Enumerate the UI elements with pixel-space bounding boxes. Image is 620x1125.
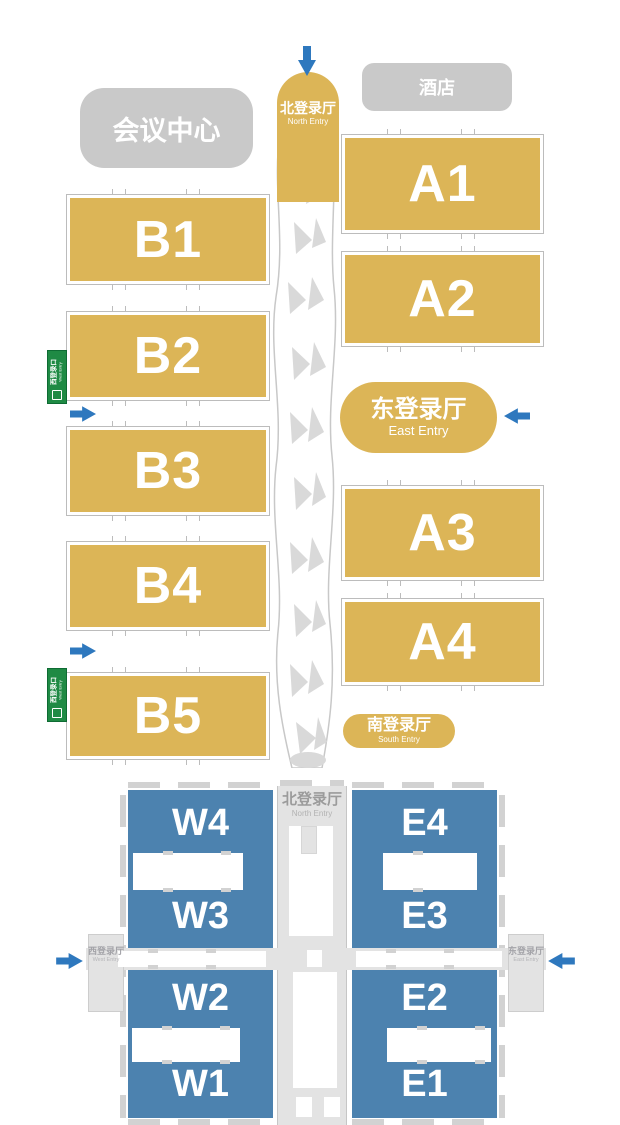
gate-sign-b2: 西登录口 West Entry (47, 350, 67, 404)
hotel-label: 酒店 (419, 74, 455, 100)
hall-a4-label: A4 (408, 612, 476, 672)
hall-b2-label: B2 (134, 326, 202, 386)
hall-e4-label: E4 (352, 804, 497, 842)
hall-b4: B4 (70, 545, 266, 627)
east-entry-lower-zh: 东登录厅 (502, 947, 550, 957)
hall-gap (387, 1028, 491, 1062)
hall-b5-label: B5 (134, 686, 202, 746)
hall-b2: B2 (70, 315, 266, 397)
hall-gap (132, 1028, 240, 1062)
edge-trim (128, 1119, 273, 1125)
hall-a1: A1 (345, 138, 540, 230)
lower-north-entry: 北登录厅 North Entry (277, 791, 347, 819)
hotel-building: 酒店 (362, 63, 512, 111)
hall-a4: A4 (345, 602, 540, 682)
edge-trim (128, 782, 273, 788)
north-entry-hall: 北登录厅 North Entry (277, 72, 339, 202)
hall-b3-label: B3 (134, 441, 202, 501)
corridor-void (296, 1097, 312, 1117)
gate-sign-b2-en: West Entry (58, 359, 62, 385)
gate-pictogram-icon (52, 390, 62, 400)
east-entry-label-en: East Entry (389, 423, 449, 439)
gate-sign-b5: 西登录口 West Entry (47, 668, 67, 722)
lower-north-entry-zh: 北登录厅 (277, 791, 347, 809)
gate-sign-b5-en: West Entry (58, 677, 62, 703)
hall-b3: B3 (70, 430, 266, 512)
venue-floor-plan: 北登录厅 North Entry 酒店 会议中心 A1 A2 A3 A4 B1 … (0, 0, 620, 1125)
hall-a1-label: A1 (408, 154, 476, 214)
hall-w4-label: W4 (128, 804, 273, 842)
north-entry-label-zh: 北登录厅 (277, 100, 339, 117)
west-entry-en: West Entry (82, 957, 130, 964)
north-entry-label-en: North Entry (277, 117, 339, 127)
corridor-void (118, 951, 266, 967)
hall-a2-label: A2 (408, 269, 476, 329)
central-corridor-art (264, 132, 348, 768)
hall-gap (383, 853, 477, 890)
hall-b1: B1 (70, 198, 266, 281)
hall-b5: B5 (70, 676, 266, 756)
hall-a3-label: A3 (408, 503, 476, 563)
south-entry-label-en: South Entry (378, 735, 420, 745)
edge-trim (352, 1119, 497, 1125)
corridor-void (293, 972, 337, 1088)
south-entry-hall: 南登录厅 South Entry (343, 714, 455, 748)
hall-e2-label: E2 (352, 979, 497, 1017)
west-gate-arrow-right-icon-1 (70, 406, 96, 422)
hall-w1-label: W1 (128, 1065, 273, 1103)
edge-trim (352, 782, 497, 788)
corridor-notch (301, 826, 317, 854)
corridor-void (324, 1097, 340, 1117)
hall-b1-label: B1 (134, 210, 202, 270)
hall-a2: A2 (345, 255, 540, 343)
corridor-void (307, 950, 322, 967)
hall-e3-label: E3 (352, 897, 497, 935)
west-entry-zh: 西登录厅 (82, 947, 130, 957)
east-entry-hall-upper: 东登录厅 East Entry (340, 382, 497, 453)
hall-e1-label: E1 (352, 1065, 497, 1103)
south-entry-label-zh: 南登录厅 (367, 717, 431, 735)
conference-center-building: 会议中心 (80, 88, 253, 168)
gate-pictogram-icon (52, 708, 62, 718)
west-entry-arrow-right-icon (56, 953, 83, 969)
east-entry-arrow-left-icon (548, 953, 575, 969)
hall-a3: A3 (345, 489, 540, 577)
hall-w2-label: W2 (128, 979, 273, 1017)
east-entry-arrow-left-icon (504, 408, 530, 424)
hall-w3-label: W3 (128, 897, 273, 935)
hall-b4-label: B4 (134, 556, 202, 616)
north-entry-arrow-down-icon (296, 46, 318, 76)
east-entry-labels: 东登录厅 East Entry (502, 947, 550, 963)
corridor-void (356, 951, 502, 967)
conference-center-label: 会议中心 (113, 109, 221, 148)
lower-north-entry-en: North Entry (277, 809, 347, 819)
east-entry-lower-en: East Entry (502, 957, 550, 964)
west-gate-arrow-right-icon-2 (70, 643, 96, 659)
hall-gap (133, 853, 243, 890)
east-entry-label-zh: 东登录厅 (371, 397, 467, 423)
west-entry-labels: 西登录厅 West Entry (82, 947, 130, 963)
